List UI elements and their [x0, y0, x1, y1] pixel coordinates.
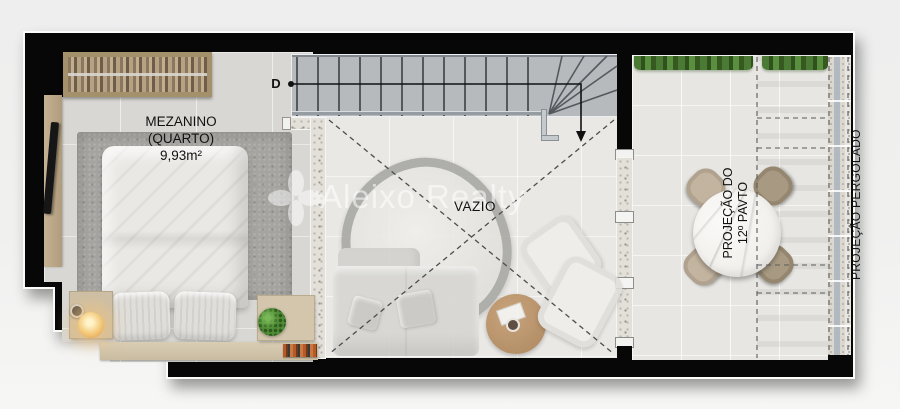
book-stack [283, 344, 317, 357]
projection-floor-line2: 12º PAVTO [736, 158, 751, 268]
table-lamp [78, 312, 104, 338]
wardrobe [63, 52, 212, 97]
guard-wall-cap [283, 118, 290, 129]
potted-plant [258, 308, 286, 336]
bed [102, 146, 248, 308]
room-title: MEZANINO [106, 113, 256, 130]
room-label-mezzanine: MEZANINO (QUARTO) 9,93m² [106, 113, 256, 164]
throw-pillow [395, 289, 436, 329]
pergola-joints [828, 55, 851, 355]
wardrobe-rail [68, 73, 207, 76]
floor-plan-canvas: Aleixo Realty MEZANINO (QUARTO) 9,93m² V… [0, 0, 900, 409]
bed-pillow [111, 291, 171, 341]
interior-wall [617, 346, 632, 377]
stair-rail [292, 55, 618, 57]
window-wall [617, 158, 632, 339]
cup [508, 320, 518, 330]
room-area: 9,93m² [106, 147, 256, 164]
interior-wall [617, 33, 632, 152]
planter-hedge [634, 56, 753, 70]
projection-pergola-label: PROJEÇÃO PERGOLADO [849, 134, 863, 280]
projection-floor-label: PROJEÇÃO DO 12º PAVTO [721, 158, 751, 268]
projection-floor-line1: PROJEÇÃO DO [721, 158, 736, 268]
void-label: VAZIO [440, 199, 510, 214]
staircase [292, 55, 618, 116]
planter-hedge [762, 56, 828, 70]
bed-pillow [173, 291, 237, 341]
wall-corner [44, 33, 63, 97]
stair-rail [292, 112, 546, 115]
room-subtitle: (QUARTO) [106, 130, 256, 147]
stair-treads [296, 55, 548, 116]
window-frame [616, 212, 633, 222]
stair-direction-label: D [268, 76, 284, 91]
stair-handrail [542, 136, 558, 140]
